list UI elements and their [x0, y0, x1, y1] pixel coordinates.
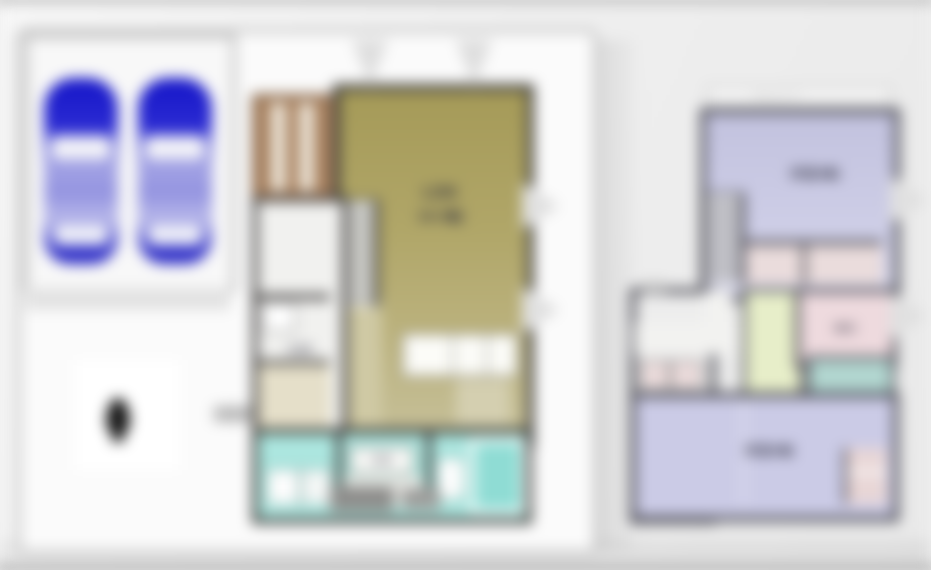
staircase-2f — [706, 192, 745, 284]
bedroom-top-label: 洋室8帖 — [790, 165, 840, 183]
ldk-room: LDK 16.5帖 — [333, 84, 534, 448]
wic-label: WIC — [835, 323, 857, 334]
wood-deck — [252, 94, 342, 204]
ldk-label: LDK — [423, 184, 459, 202]
kitchen-counter — [402, 333, 518, 377]
entrance-floor — [258, 365, 330, 428]
window-mark — [642, 282, 666, 292]
car-icon — [44, 78, 118, 264]
toilet-icon — [436, 456, 466, 502]
closet — [746, 245, 806, 284]
bathtub-icon — [470, 438, 526, 514]
deck-slat — [299, 103, 314, 191]
closet — [640, 360, 670, 390]
window-light-mark — [522, 182, 560, 230]
hallway-2f — [704, 290, 732, 324]
bedroom-bottom: 洋室6帖 — [630, 392, 899, 522]
bedroom-bottom-label: 洋室6帖 — [745, 442, 795, 460]
top-border-line — [0, 0, 931, 2]
car-icon — [138, 78, 212, 264]
entrance-wing: 玄関 — [252, 196, 348, 446]
ldk-size-label: 16.5帖 — [418, 208, 464, 226]
rear-step — [330, 486, 394, 512]
window-light-mark — [890, 176, 928, 224]
vanity-unit: 洗面 — [350, 446, 414, 474]
closet — [670, 360, 702, 390]
hallway-2f — [634, 322, 742, 354]
blurred-floorplan-scene: LDK 16.5帖 玄関 洗面 — [0, 0, 931, 570]
balcony-eave: バルコニー — [706, 86, 892, 106]
window-light-mark — [352, 40, 388, 88]
window-light-mark — [522, 286, 560, 334]
ldk-hall-strip — [344, 297, 382, 427]
driveway-apron — [26, 288, 230, 310]
window-light-mark — [456, 40, 492, 88]
laundry-machine-icon — [266, 468, 300, 506]
closet — [843, 448, 887, 504]
eave-label: バルコニー — [752, 90, 803, 103]
ldk-light-patch — [456, 379, 510, 425]
wall — [258, 294, 330, 300]
bedroom-top: 洋室8帖 — [700, 108, 900, 302]
closet — [806, 245, 882, 284]
window-light-mark — [890, 292, 928, 340]
rear-step — [402, 488, 440, 510]
floorplan-image: LDK 16.5帖 玄関 洗面 — [0, 0, 931, 570]
washbasin-icon — [262, 302, 296, 332]
plant-pot-icon — [112, 434, 124, 442]
vanity-label: 洗面 — [371, 453, 393, 467]
entrance-porch-step — [214, 406, 252, 422]
deck-slat — [271, 103, 286, 191]
entrance-label: 玄関 — [287, 341, 313, 358]
storage-box-icon — [300, 468, 332, 506]
